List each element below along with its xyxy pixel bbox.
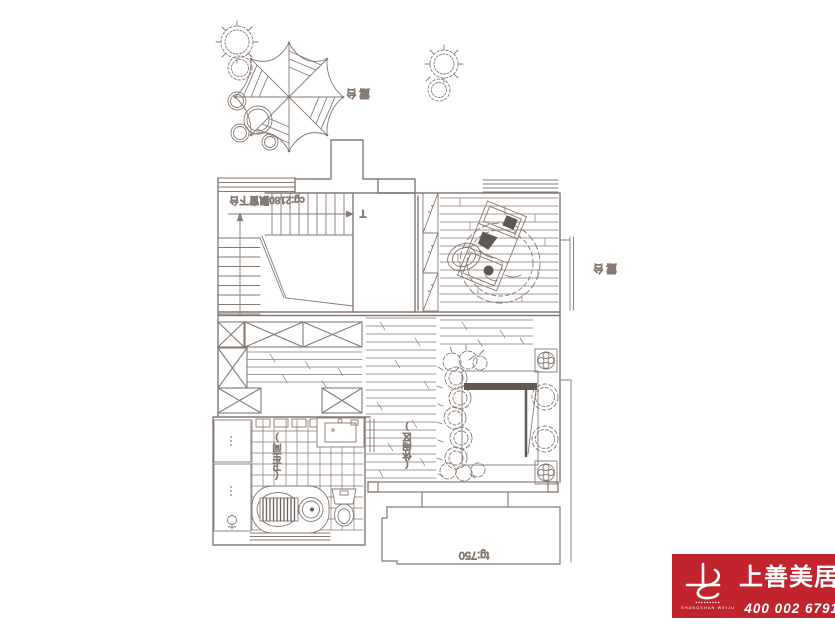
window-hatch <box>218 178 558 192</box>
bath-threshold <box>250 533 330 540</box>
stair-direction-mark: T <box>359 207 366 219</box>
stair-annotation-label: cg:2180飘窗下台 <box>229 194 305 207</box>
toilet <box>332 489 356 526</box>
wood-floor-hall <box>247 352 362 387</box>
plant-icon <box>216 21 258 80</box>
terrace-right-label: 露台 <box>591 262 617 276</box>
bathtub <box>252 486 329 533</box>
sink <box>317 418 364 447</box>
garden-platform <box>462 371 538 465</box>
plant-icon <box>425 45 463 101</box>
plant-blob <box>460 223 540 303</box>
tree-icon <box>532 384 558 452</box>
parasol-icon <box>234 42 345 153</box>
stepping-stones <box>228 92 278 150</box>
understair-void <box>262 236 353 306</box>
bath-cabinets <box>214 420 251 531</box>
leisure-label: (休闲区) <box>402 422 411 470</box>
logo-mark-icon <box>681 561 725 601</box>
brand-phone: 400 002 6791 <box>739 601 835 616</box>
hatched-wall-band <box>423 193 438 311</box>
brand-logo: 上善美居 ▪▪▪▪▪▪▪▪▪ SHANGSHAN WEIJU 400 002 6… <box>672 554 835 618</box>
beam-band <box>368 482 558 506</box>
wood-floor-corridor <box>366 318 533 478</box>
brand-latin-text: SHANGSHAN WEIJU <box>681 605 735 610</box>
floorplan-page: 露台 露台 cg:2180飘窗下台 T (卫生间) (休闲区) tg:750 上… <box>0 0 835 624</box>
height-note-label: tg:750 <box>459 549 490 561</box>
brand-latin: ▪▪▪▪▪▪▪▪▪ SHANGSHAN WEIJU <box>681 601 735 616</box>
terrace-edge <box>560 237 574 562</box>
closet-xboxes <box>218 322 362 413</box>
floorplan-drawing: 露台 露台 cg:2180飘窗下台 T (卫生间) (休闲区) tg:750 <box>0 0 835 624</box>
terrace-upper-label: 露台 <box>344 87 370 101</box>
staircase-left <box>218 212 284 314</box>
brand-name: 上善美居 <box>739 561 835 601</box>
